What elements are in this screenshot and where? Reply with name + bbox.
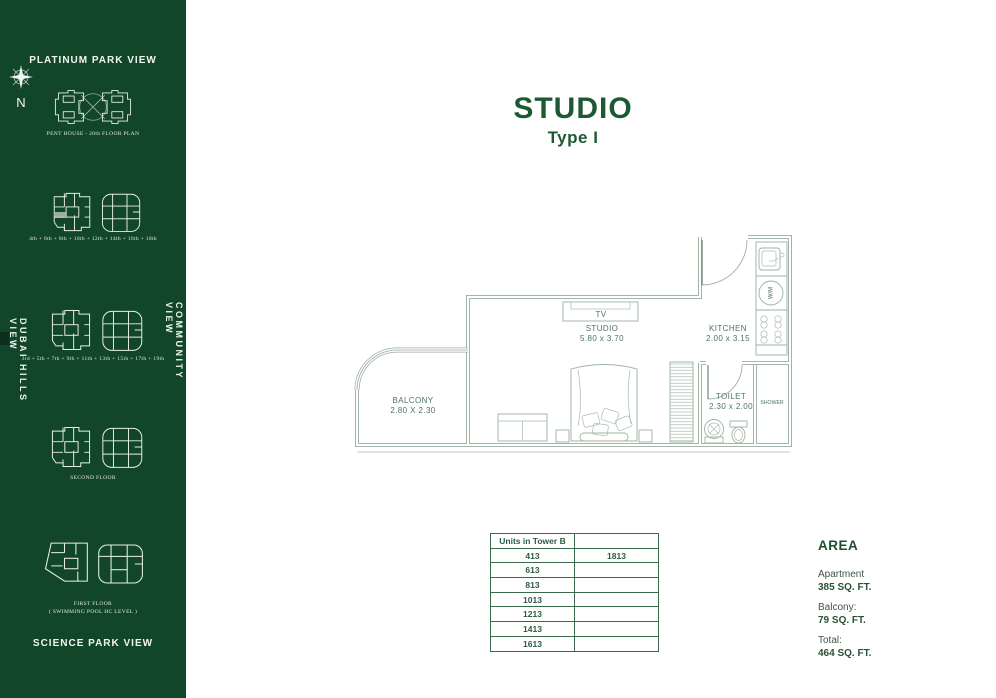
area-value: 385 SQ. FT. bbox=[818, 582, 968, 595]
toilet-label: TOILET bbox=[716, 392, 746, 401]
sidebar-right-vertical-title: COMMUNITY VIEW bbox=[164, 302, 184, 397]
faucet-icon bbox=[780, 253, 784, 257]
table-row: 1213 bbox=[491, 607, 659, 622]
sink-icon bbox=[762, 251, 776, 266]
table-cell: 1013 bbox=[491, 592, 575, 607]
balcony-label: BALCONY bbox=[392, 396, 433, 405]
page-subtitle: Type I bbox=[420, 128, 726, 148]
units-table: Units in Tower B 4131813 613 813 1013 12… bbox=[490, 533, 659, 652]
studio-label: STUDIO bbox=[586, 324, 619, 333]
table-cell bbox=[575, 592, 659, 607]
table-cell bbox=[575, 622, 659, 637]
diagram-first-floor-label: FIRST FLOOR bbox=[0, 601, 186, 608]
wc-icon bbox=[730, 421, 747, 443]
table-row: 1013 bbox=[491, 592, 659, 607]
diagram-even-floors-label: 4th + 6th + 8th + 10th + 12th + 14th + 1… bbox=[0, 236, 186, 243]
table-cell bbox=[575, 578, 659, 593]
balcony-dims: 2.80 X 2.30 bbox=[390, 406, 435, 415]
toilet-dims: 2.30 x 2.00 bbox=[709, 402, 753, 411]
edge-mark bbox=[0, 332, 9, 345]
area-label: Total: bbox=[818, 635, 968, 648]
room-labels: BALCONY 2.80 X 2.30 STUDIO 5.80 x 3.70 K… bbox=[390, 324, 784, 415]
area-item-balcony: Balcony: 79 SQ. FT. bbox=[818, 602, 968, 627]
area-item-apartment: Apartment 385 SQ. FT. bbox=[818, 569, 968, 594]
table-cell: 413 bbox=[491, 548, 575, 563]
shower-label: SHOWER bbox=[760, 400, 784, 406]
table-cell: 1813 bbox=[575, 548, 659, 563]
washbasin-icon bbox=[705, 420, 724, 444]
bed-icon bbox=[556, 365, 652, 443]
washing-machine-icon: W/M bbox=[759, 281, 783, 305]
table-row: 1613 bbox=[491, 636, 659, 651]
table-row: Units in Tower B bbox=[491, 534, 659, 549]
area-item-total: Total: 464 SQ. FT. bbox=[818, 635, 968, 660]
table-cell bbox=[575, 534, 659, 549]
area-label: Apartment bbox=[818, 569, 968, 582]
table-row: 613 bbox=[491, 563, 659, 578]
page-title-block: STUDIO Type I bbox=[420, 92, 726, 148]
table-row: 813 bbox=[491, 578, 659, 593]
table-row: 4131813 bbox=[491, 548, 659, 563]
sidebar-left-vertical-title: DUBAI HILLS VIEW bbox=[8, 318, 28, 408]
diagram-first-floor-sublabel: ( SWIMMING POOL HC LEVEL ) bbox=[0, 609, 186, 616]
highlighted-unit bbox=[55, 212, 66, 218]
table-cell: 1213 bbox=[491, 607, 575, 622]
tv-label: TV bbox=[595, 310, 606, 319]
area-value: 79 SQ. FT. bbox=[818, 615, 968, 628]
table-cell bbox=[575, 636, 659, 651]
area-summary: AREA Apartment 385 SQ. FT. Balcony: 79 S… bbox=[818, 538, 968, 668]
kitchen-counter: W/M bbox=[756, 242, 787, 355]
table-cell bbox=[575, 563, 659, 578]
diagram-odd-floors-label: 3rd + 5th + 7th + 9th + 11th + 13th + 15… bbox=[0, 356, 186, 363]
table-cell: 1413 bbox=[491, 622, 575, 637]
kitchen-label: KITCHEN bbox=[709, 324, 747, 333]
sidebar-bottom-title: SCIENCE PARK VIEW bbox=[0, 638, 186, 649]
diagram-second-floor-label: SECOND FLOOR bbox=[0, 475, 186, 482]
sidebar-top-title: PLATINUM PARK VIEW bbox=[0, 55, 186, 66]
diagram-even-floors bbox=[38, 190, 150, 234]
area-title: AREA bbox=[818, 538, 968, 553]
wm-label: W/M bbox=[769, 287, 775, 299]
stove-icon bbox=[761, 316, 781, 343]
sidebar: N PLATINUM PARK VIEW PENT HOUSE - 20th F… bbox=[0, 0, 186, 698]
compass-n-label: N bbox=[16, 95, 25, 110]
diagram-odd-floors bbox=[38, 307, 150, 353]
area-label: Balcony: bbox=[818, 602, 968, 615]
floor-plan: W/M TV bbox=[350, 228, 795, 463]
page-title: STUDIO bbox=[420, 92, 726, 126]
diagram-penthouse-label: PENT HOUSE - 20th FLOOR PLAN bbox=[0, 131, 186, 138]
table-row: 1413 bbox=[491, 622, 659, 637]
diagram-penthouse bbox=[46, 84, 140, 130]
table-cell: 813 bbox=[491, 578, 575, 593]
area-value: 464 SQ. FT. bbox=[818, 648, 968, 661]
diagram-second-floor bbox=[38, 424, 150, 470]
diagram-first-floor bbox=[36, 533, 150, 595]
kitchen-dims: 2.00 x 3.15 bbox=[706, 334, 750, 343]
table-cell: 613 bbox=[491, 563, 575, 578]
table-cell bbox=[575, 607, 659, 622]
table-header-cell: Units in Tower B bbox=[491, 534, 575, 549]
wardrobe-icon bbox=[670, 362, 693, 442]
tv-unit: TV bbox=[563, 302, 638, 321]
studio-dims: 5.80 x 3.70 bbox=[580, 334, 624, 343]
page: N PLATINUM PARK VIEW PENT HOUSE - 20th F… bbox=[0, 0, 996, 698]
entry-door bbox=[702, 240, 747, 285]
sofa-icon bbox=[498, 414, 547, 441]
compass-icon: N bbox=[8, 64, 34, 112]
table-cell: 1613 bbox=[491, 636, 575, 651]
